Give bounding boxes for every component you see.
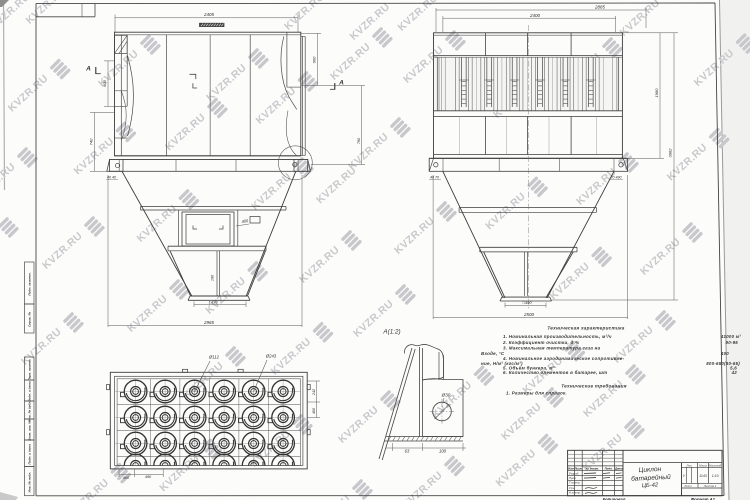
svg-text:1430: 1430 (209, 299, 219, 304)
svg-text:□490: □490 (522, 300, 532, 305)
svg-text:100: 100 (439, 449, 447, 454)
svg-text:Лит.: Лит. (685, 463, 692, 467)
svg-text:400: 400 (123, 476, 130, 480)
svg-text:Масштаб: Масштаб (709, 463, 722, 467)
svg-text:Взам. инв. №: Взам. инв. № (28, 420, 32, 441)
svg-text:Входе, °С: Входе, °С (481, 351, 505, 356)
svg-text:Лист: Лист (683, 484, 692, 488)
svg-text:2965: 2965 (203, 320, 215, 325)
svg-text:190: 190 (211, 274, 215, 281)
svg-text:600: 600 (312, 56, 317, 63)
svg-text:41000 м³: 41000 м³ (720, 334, 741, 339)
svg-text:40 70: 40 70 (430, 176, 439, 180)
svg-text:2. Коэффициент очистки, д %: 2. Коэффициент очистки, д % (502, 339, 579, 345)
svg-text:1980: 1980 (654, 88, 659, 98)
svg-text:Подп. экземпл.: Подп. экземпл. (28, 272, 32, 295)
svg-text:3. Максимальная температура: 3. Максимальная температура газа на (503, 346, 601, 351)
svg-text:Масса: Масса (699, 463, 707, 467)
svg-text:Лист: Лист (573, 467, 582, 471)
svg-text:2405: 2405 (203, 12, 215, 17)
svg-text:70 490: 70 490 (611, 176, 622, 180)
svg-text:Разраб.: Разраб. (569, 472, 579, 476)
svg-text:Дата: Дата (614, 467, 623, 471)
svg-text:Инв. № дубл.: Инв. № дубл. (28, 401, 32, 422)
svg-text:Т.контр.: Т.контр. (569, 481, 581, 485)
svg-text:1143: 1143 (699, 474, 707, 478)
svg-text:Перв. примен.: Перв. примен. (28, 358, 32, 380)
svg-text:1:10: 1:10 (712, 474, 719, 478)
svg-text:740: 740 (89, 138, 94, 145)
svg-text:Ø243: Ø243 (265, 354, 277, 359)
svg-text:Справ. №: Справ. № (28, 312, 32, 327)
svg-text:Циклон: Циклон (638, 466, 661, 474)
svg-text:Инв. № подл.: Инв. № подл. (28, 472, 32, 493)
svg-text:Технические требования: Технические требования (561, 382, 626, 388)
svg-text:Утв.: Утв. (569, 486, 576, 490)
svg-text:Ø30: Ø30 (441, 393, 451, 398)
svg-text:А(1:2): А(1:2) (382, 329, 400, 336)
svg-text:Листов 1: Листов 1 (703, 484, 717, 488)
svg-text:Подп. и дата: Подп. и дата (28, 381, 32, 402)
svg-text:490: 490 (145, 475, 152, 479)
svg-text:№ докум.: № докум. (586, 467, 599, 471)
svg-text:242: 242 (312, 388, 316, 396)
svg-text:790: 790 (357, 137, 361, 144)
svg-text:3982: 3982 (668, 148, 673, 158)
svg-text:400: 400 (720, 351, 729, 356)
svg-text:40 40: 40 40 (107, 176, 116, 180)
svg-text:1. Номинальная производительн: 1. Номинальная производительность, м³/ч (503, 334, 612, 339)
svg-text:90-95: 90-95 (726, 340, 739, 345)
svg-text:ЦБ-42: ЦБ-42 (642, 482, 659, 489)
svg-text:A: A (85, 66, 91, 73)
svg-text:Подп. и дата: Подп. и дата (28, 444, 32, 465)
svg-text:2400: 2400 (529, 13, 541, 18)
svg-text:2885: 2885 (594, 5, 606, 10)
svg-text:42: 42 (731, 370, 738, 375)
svg-text:Пров.: Пров. (569, 476, 577, 480)
svg-text:400: 400 (312, 407, 316, 414)
svg-text:Ø112: Ø112 (208, 355, 220, 360)
svg-text:Техническая характеристика: Техническая характеристика (547, 326, 624, 331)
svg-text:63: 63 (405, 449, 410, 454)
svg-text:600: 600 (102, 79, 107, 86)
svg-text:Н.контр.: Н.контр. (569, 491, 581, 495)
svg-text:A: A (338, 80, 344, 87)
svg-text:1. Размеры для справок.: 1. Размеры для справок. (506, 390, 567, 395)
svg-text:Подп.: Подп. (605, 467, 613, 471)
svg-text:2500: 2500 (523, 312, 535, 317)
svg-text:6. Количество элементов в б: 6. Количество элементов в батарее, шт (503, 369, 607, 375)
